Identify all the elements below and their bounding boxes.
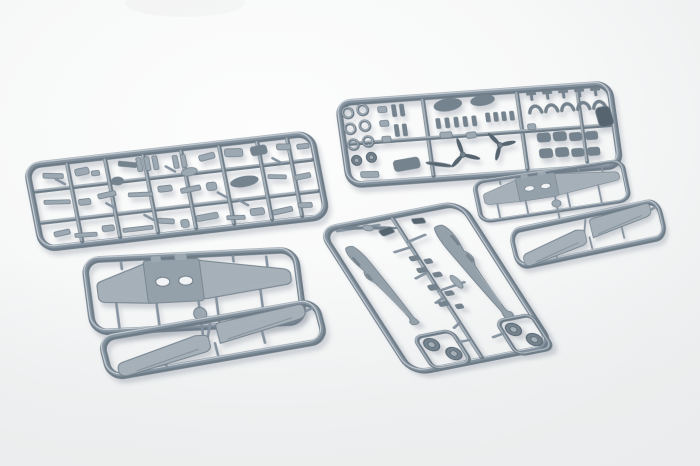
sprues-photo: [0, 0, 700, 466]
photo-canvas: [0, 0, 700, 466]
